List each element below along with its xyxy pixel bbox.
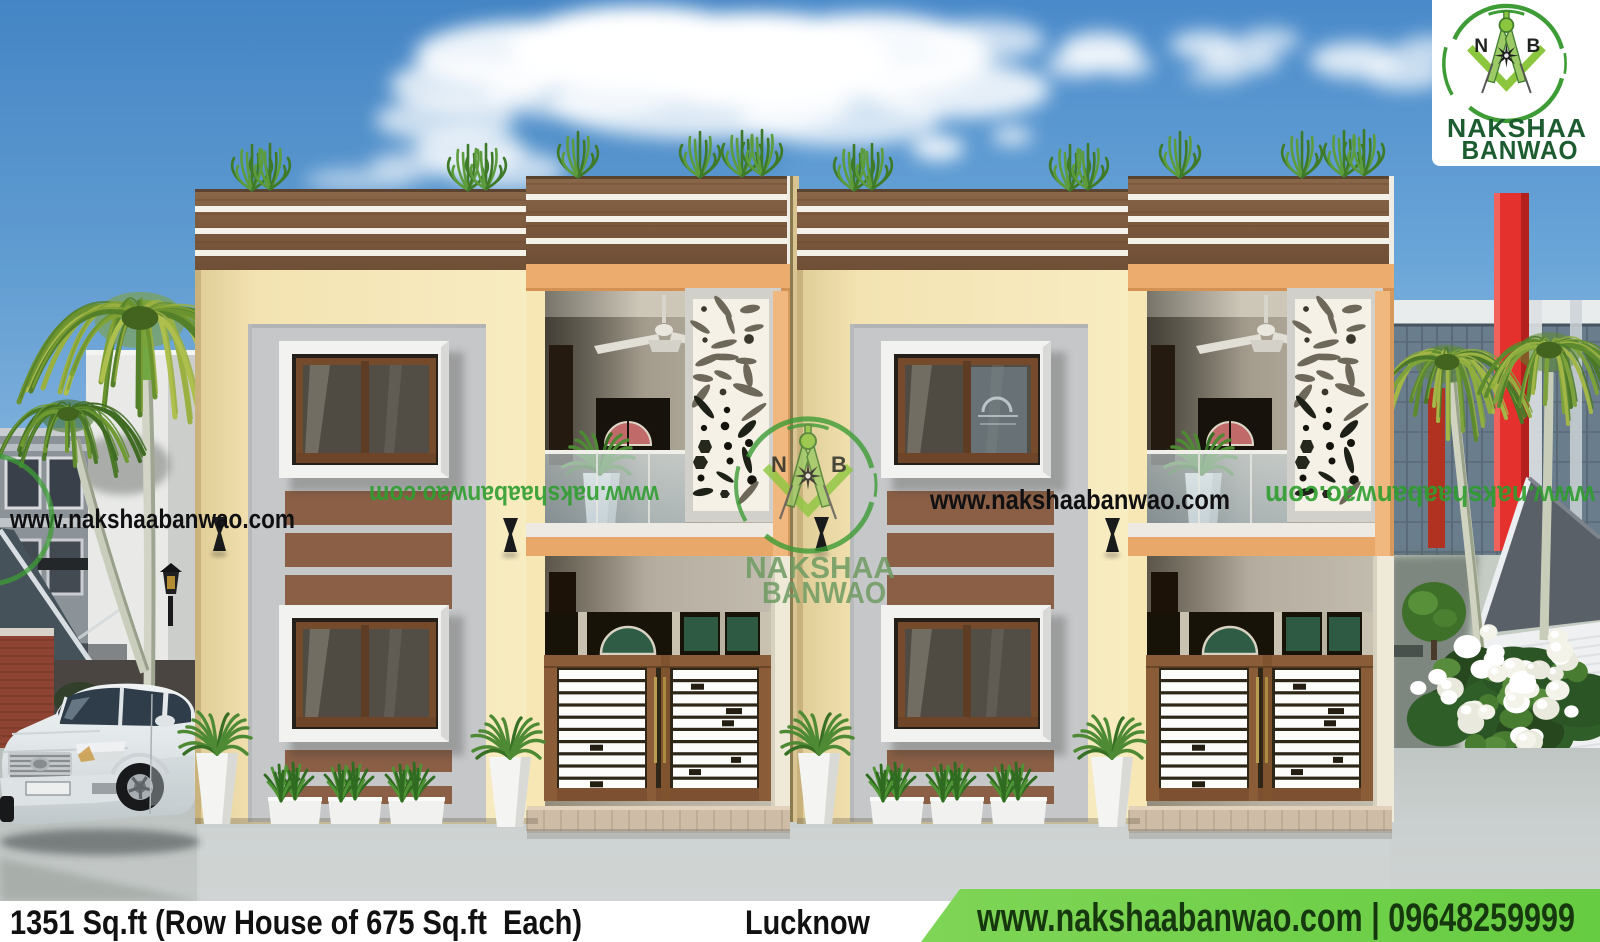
svg-text:Lucknow: Lucknow — [745, 904, 870, 942]
svg-text:BANWAO: BANWAO — [762, 575, 886, 610]
svg-text:www.nakshaabanwao.com | 096482: www.nakshaabanwao.com | 09648259999 — [976, 896, 1575, 940]
svg-text:www.nakshaabanwao.com: www.nakshaabanwao.com — [369, 480, 660, 510]
svg-text:www.nakshaabanwao.com: www.nakshaabanwao.com — [1265, 479, 1596, 511]
svg-text:www.nakshaabanwao.com: www.nakshaabanwao.com — [929, 484, 1230, 515]
svg-text:1351 Sq.ft (Row House of 675 S: 1351 Sq.ft (Row House of 675 Sq.ft Each) — [10, 904, 582, 942]
svg-text:BANWAO: BANWAO — [1462, 135, 1579, 165]
